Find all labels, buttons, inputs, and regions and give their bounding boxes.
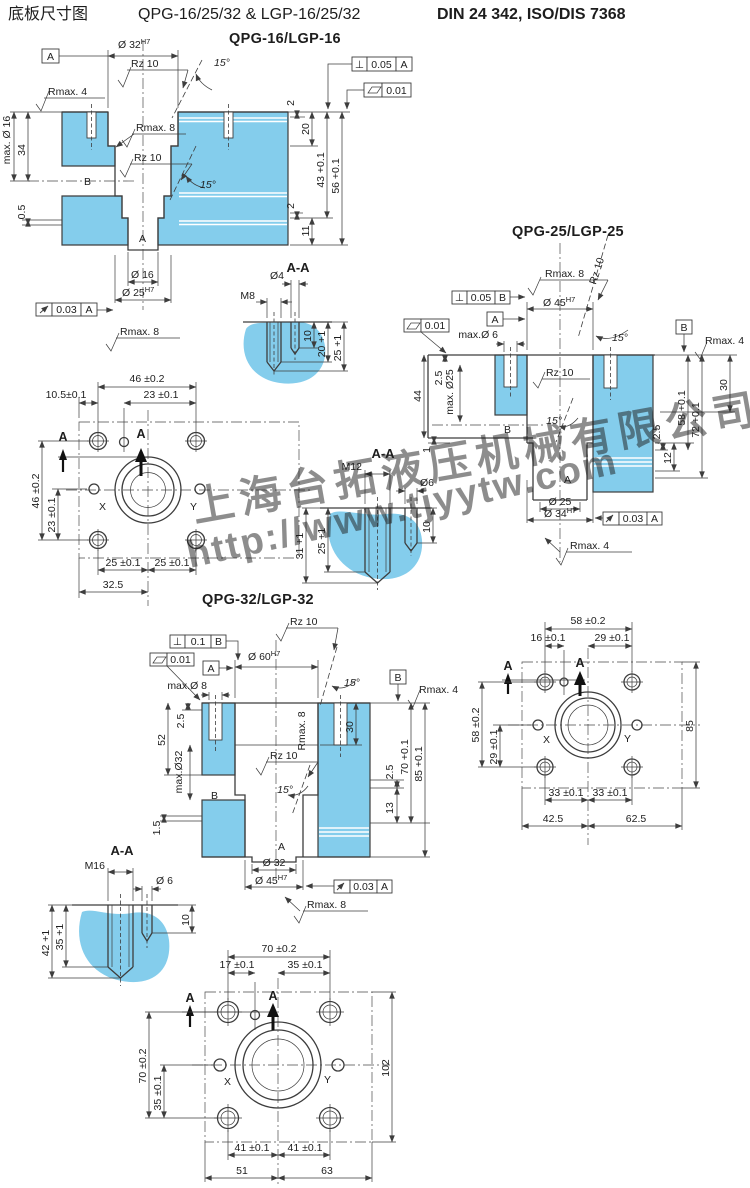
dim-label: 85 +0.1 (413, 746, 425, 781)
datum-label: A (491, 314, 498, 326)
svg-text:0.01: 0.01 (386, 85, 407, 97)
svg-text:0.03: 0.03 (623, 513, 644, 525)
surface-finish-icon (276, 623, 289, 641)
surface-finish-label: Rmax. 4 (48, 86, 87, 98)
dim-label: 33 ±0.1 (593, 787, 628, 799)
dim-label: max.Ø32 (173, 751, 185, 794)
drawing-sheet: 底板尺寸图 QPG-16/25/32 & LGP-16/25/32 DIN 24… (0, 0, 750, 1188)
gdt-flatness: 0.01 (347, 83, 411, 109)
dim-label: max.Ø 6 (458, 329, 498, 341)
dim-label: Ø 25H7 (122, 285, 154, 299)
dim-label: 63 (321, 1165, 333, 1177)
dim-label: 70 ±0.2 (262, 943, 297, 955)
surface-finish-label: Rz 10 (587, 256, 607, 286)
dim-label: 2 (285, 203, 297, 209)
datum-label: A (47, 51, 54, 63)
dim-label: 17 ±0.1 (220, 959, 255, 971)
surface-finish-label: Rmax. 8 (120, 326, 159, 338)
gdt-runout: 0.03 A (595, 512, 662, 525)
dim-label: M16 (85, 860, 106, 872)
svg-text:0.03: 0.03 (56, 304, 77, 316)
dim-label: 33 ±0.1 (549, 787, 584, 799)
dim-label: Ø 45H7 (255, 873, 287, 887)
drawing-title: 底板尺寸图 (8, 5, 88, 23)
dim-label: 10 (180, 914, 192, 926)
gdt-flatness: 0.01 (150, 653, 200, 700)
qpg32-section-view: QPG-32/LGP-32 Rz 10 15° ⊥ 0.1 B Ø 60H7 A… (150, 592, 458, 923)
surface-finish-label: Rmax. 4 (570, 540, 609, 552)
dim-label: 0.5 (16, 205, 28, 220)
surface-finish-label: Rmax. 4 (419, 684, 458, 696)
section-title: A-A (110, 843, 134, 858)
dim-label: 10 (302, 330, 314, 342)
dim-label: 25 ±0.1 (155, 557, 190, 569)
dim-label: 56 +0.1 (330, 158, 342, 193)
dim-label: 2.5 (175, 714, 187, 729)
dim-label: Ø4 (270, 270, 284, 282)
dim-label: 20 +1 (316, 331, 328, 358)
dim-label: Ø 32H7 (118, 37, 150, 51)
port-hole-x (89, 484, 99, 494)
dim-label: 46 ±0.2 (30, 473, 42, 508)
dim-label: 29 ±0.1 (595, 632, 630, 644)
dim-label: 16 ±0.1 (531, 632, 566, 644)
dim-label: 25 ±0.1 (106, 557, 141, 569)
svg-text:A: A (381, 881, 388, 893)
svg-text:A: A (400, 59, 407, 71)
svg-text:A: A (85, 304, 92, 316)
dim-label: 43 +0.1 (315, 152, 327, 187)
section-letter: A (503, 659, 512, 673)
svg-text:B: B (499, 292, 506, 304)
watermark: 上海台拓液压机械有限公司 http://www.tjyytw.com (183, 385, 750, 577)
surface-finish-icon (120, 159, 133, 177)
svg-text:0.05: 0.05 (471, 292, 492, 304)
svg-text:0.05: 0.05 (371, 59, 392, 71)
gdt-runout: 0.03 A (306, 880, 392, 893)
datum-label: B (680, 322, 687, 334)
dim-label: 41 ±0.1 (235, 1142, 270, 1154)
dim-label: 51 (236, 1165, 248, 1177)
axis-label: Y (324, 1074, 331, 1086)
dim-label: 32.5 (103, 579, 124, 591)
flange-outline (205, 992, 372, 1142)
dim-label: Ø 6 (156, 875, 173, 887)
section-arrow (186, 1005, 194, 1027)
section-arrow (135, 448, 147, 476)
drawing-canvas: 底板尺寸图 QPG-16/25/32 & LGP-16/25/32 DIN 24… (0, 0, 750, 1188)
header: 底板尺寸图 QPG-16/25/32 & LGP-16/25/32 DIN 24… (8, 5, 626, 47)
dim-label: 42 +1 (40, 930, 52, 957)
svg-text:0.01: 0.01 (425, 320, 446, 332)
axis-label: X (99, 501, 106, 513)
dim-label: 46 ±0.2 (130, 373, 165, 385)
axis-label: X (224, 1076, 231, 1088)
dim-label: Ø 60H7 (248, 649, 280, 663)
axis-label: Y (624, 733, 631, 745)
angle-label: 15° (214, 57, 230, 69)
surface-finish-icon (256, 757, 269, 775)
dim-label: 85 (684, 720, 696, 732)
surface-finish-label: Rmax. 8 (545, 268, 584, 280)
section-arrow (504, 673, 512, 694)
dim-label: 23 ±0.1 (144, 389, 179, 401)
gdt-perpendicularity: ⊥ 0.05 B (452, 291, 525, 304)
surface-finish-icon (294, 906, 306, 923)
angle-label: 15° (344, 677, 360, 689)
section-arrow (59, 449, 67, 472)
view-heading: QPG-16/LGP-16 (229, 31, 341, 47)
dim-label: 30 (344, 721, 356, 733)
detail-shading (79, 911, 169, 983)
dim-label: 70 +0.1 (399, 739, 411, 774)
svg-text:⊥: ⊥ (455, 292, 464, 304)
svg-text:⊥: ⊥ (355, 59, 364, 71)
surface-finish-label: Rz 10 (131, 58, 159, 70)
dim-label: 44 (412, 390, 424, 402)
dim-label: max. Ø 16 (1, 116, 13, 165)
dim-label: 12 (662, 452, 674, 464)
dim-label: 2.5 (384, 765, 396, 780)
dim-label: 10.5±0.1 (46, 389, 87, 401)
dim-label: 58 ±0.2 (571, 615, 606, 627)
surface-finish-label: Rmax. 8 (307, 899, 346, 911)
dim-label: max. Ø25 (444, 369, 456, 415)
gdt-runout: 0.03 A (36, 303, 113, 316)
qpg16-detail-aa: A-A Ø4 M8 10 20 +1 25 +1 (240, 260, 348, 384)
bolt-holes (534, 671, 643, 778)
section-letter: A (185, 991, 194, 1005)
port-label: A (278, 841, 285, 853)
surface-finish-label: Rmax. 4 (705, 335, 744, 347)
qpg16-section-view: Ø 32H7 A Rz 10 15° ⊥ 0.05 A 0.01 2 20 43… (1, 37, 412, 351)
standard-ref: DIN 24 342, ISO/DIS 7368 (437, 6, 626, 23)
angle-label: 15° (200, 179, 216, 191)
angle-label: 15° (277, 784, 293, 796)
surface-finish-label: Rmax. 8 (296, 711, 308, 750)
section-title: A-A (286, 260, 310, 275)
dim-label: 25 +1 (332, 335, 344, 362)
dim-label: 62.5 (626, 813, 647, 825)
qpg32-detail-aa: A-A M16 Ø 6 42 +1 35 +1 10 (40, 843, 196, 986)
surface-finish-icon (106, 333, 119, 351)
dim-label: 20 (300, 123, 312, 135)
section-letter: A (575, 656, 584, 670)
surface-finish-icon (528, 277, 541, 295)
model-codes: QPG-16/25/32 & LGP-16/25/32 (138, 6, 360, 23)
angle-label: 15° (612, 332, 628, 344)
dim-label: max.Ø 8 (167, 680, 207, 692)
svg-text:0.1: 0.1 (191, 636, 206, 648)
dim-label: 2 (285, 100, 297, 106)
dim-label: 35 ±0.1 (288, 959, 323, 971)
port-label: A (139, 233, 146, 245)
surface-finish-label: Rmax. 8 (136, 122, 175, 134)
gdt-flatness: 0.01 (404, 319, 449, 353)
section-arrow (267, 1003, 279, 1030)
qpg32-flange-view: X Y A A 70 ±0.2 17 ±0.1 35 ±0.1 70 ±0.2 … (137, 943, 396, 1185)
axis-label: X (543, 734, 550, 746)
svg-text:A: A (651, 513, 658, 525)
dim-label: 11 (300, 225, 312, 236)
datum-label: B (84, 176, 91, 188)
dim-label: 13 (384, 802, 396, 814)
dim-label: 58 ±0.2 (470, 707, 482, 742)
dim-label: 1.5 (151, 821, 163, 836)
section-letter: A (268, 989, 277, 1003)
chamfer-line (320, 647, 337, 706)
dim-label: Ø 32 (263, 857, 286, 869)
surface-finish-icon (556, 548, 568, 565)
surface-finish-label: Rz 10 (290, 616, 318, 628)
section-letter: A (136, 427, 145, 441)
surface-finish-icon (533, 372, 545, 388)
dim-label: 70 ±0.2 (137, 1048, 149, 1083)
datum-label: B (211, 790, 218, 802)
dim-label: 102 (380, 1059, 392, 1077)
dim-label: 42.5 (543, 813, 564, 825)
svg-text:⊥: ⊥ (173, 636, 182, 648)
dim-label: 41 ±0.1 (288, 1142, 323, 1154)
dim-label: 29 ±0.1 (488, 729, 500, 764)
svg-text:0.01: 0.01 (170, 654, 191, 666)
dim-label: Ø 45H7 (543, 295, 575, 309)
dim-label: 35 ±0.1 (152, 1075, 164, 1110)
view-heading: QPG-32/LGP-32 (202, 592, 314, 608)
dim-label: 52 (156, 734, 168, 746)
svg-text:B: B (215, 636, 222, 648)
dim-label: Ø 34H7 (544, 506, 576, 520)
section-letter: A (58, 430, 67, 444)
surface-finish-label: Rz 10 (270, 750, 298, 762)
surface-finish-label: Rz 10 (134, 152, 162, 164)
dim-label: 34 (16, 144, 28, 156)
svg-text:0.03: 0.03 (353, 881, 374, 893)
qpg25-flange-view: X Y A A 58 ±0.2 16 ±0.1 29 ±0.1 58 ±0.2 … (470, 615, 700, 845)
datum-label: A (207, 663, 214, 675)
dim-label: M8 (240, 290, 255, 302)
dim-label: 23 ±0.1 (46, 497, 58, 532)
datum-label: B (394, 672, 401, 684)
chamfer-line (172, 60, 202, 118)
dim-label: 35 +1 (54, 924, 66, 951)
surface-finish-label: Rz 10 (546, 367, 574, 379)
dim-label: Ø 16 (131, 269, 154, 281)
